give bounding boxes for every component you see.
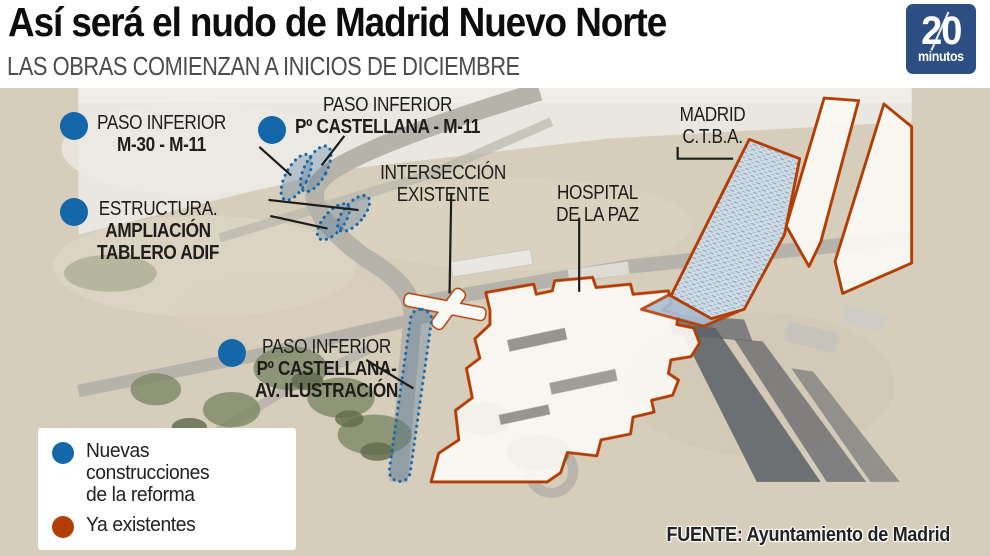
existing-dot bbox=[52, 516, 74, 538]
label-line: PASO INFERIOR bbox=[255, 336, 398, 358]
label-paso-inferior-m30: PASO INFERIOR M-30 - M-11 bbox=[60, 112, 247, 156]
label-paso-inferior-castellana-m11: PASO INFERIOR Pº CASTELLANA - M-11 bbox=[258, 94, 510, 144]
new-construction-dot bbox=[258, 116, 286, 144]
label-line: TABLERO ADIF bbox=[97, 242, 219, 264]
label-line: PASO INFERIOR bbox=[295, 94, 480, 116]
label-line: DE LA PAZ bbox=[539, 204, 655, 226]
new-construction-dot bbox=[218, 339, 246, 367]
logo-number: 20 bbox=[921, 14, 961, 48]
label-line: C.T.B.A. bbox=[663, 126, 762, 148]
logo-20minutos: 20 minutos bbox=[906, 4, 976, 74]
label-line: AMPLIACIÓN bbox=[97, 220, 219, 242]
aerial-map: PASO INFERIOR M-30 - M-11 PASO INFERIOR … bbox=[0, 88, 990, 556]
label-line: M-30 - M-11 bbox=[97, 134, 226, 156]
legend-item-new: Nuevas construcciones de la reforma bbox=[52, 440, 282, 506]
legend-label: Ya existentes bbox=[86, 514, 195, 536]
legend-label: de la reforma bbox=[86, 484, 270, 506]
label-madrid-ctba: MADRID C.T.B.A. bbox=[655, 104, 770, 149]
legend-item-existing: Ya existentes bbox=[52, 514, 282, 538]
label-line: MADRID bbox=[663, 104, 762, 126]
label-paso-inferior-castellana-ilustracion: PASO INFERIOR Pº CASTELLANA- AV. ILUSTRA… bbox=[218, 336, 421, 402]
label-line: PASO INFERIOR bbox=[97, 112, 226, 134]
infographic: Así será el nudo de Madrid Nuevo Norte L… bbox=[0, 0, 990, 556]
page-subtitle: LAS OBRAS COMIENZAN A INICIOS DE DICIEMB… bbox=[7, 51, 520, 82]
label-hospital-la-paz: HOSPITAL DE LA PAZ bbox=[530, 182, 665, 227]
label-line: HOSPITAL bbox=[539, 182, 655, 204]
label-line: ESTRUCTURA. bbox=[97, 198, 219, 220]
logo-word: minutos bbox=[918, 49, 964, 64]
label-line: EXISTENTE bbox=[379, 184, 508, 206]
label-interseccion-existente: INTERSECCIÓN EXISTENTE bbox=[368, 162, 518, 207]
label-line: AV. ILUSTRACIÓN bbox=[255, 380, 398, 402]
page-title: Así será el nudo de Madrid Nuevo Norte bbox=[8, 0, 666, 45]
source-credit: FUENTE: Ayuntamiento de Madrid bbox=[666, 524, 950, 547]
legend-label: Nuevas construcciones bbox=[86, 440, 270, 484]
label-line: Pº CASTELLANA- bbox=[255, 358, 398, 380]
new-construction-dot bbox=[52, 442, 74, 464]
label-line: Pº CASTELLANA - M-11 bbox=[295, 116, 480, 138]
label-estructura-adif: ESTRUCTURA. AMPLIACIÓN TABLERO ADIF bbox=[60, 198, 239, 264]
map-legend: Nuevas construcciones de la reforma Ya e… bbox=[38, 428, 296, 550]
page-header: Así será el nudo de Madrid Nuevo Norte L… bbox=[0, 0, 990, 88]
new-construction-dot bbox=[60, 112, 88, 140]
label-line: INTERSECCIÓN bbox=[379, 162, 508, 184]
new-construction-dot bbox=[60, 198, 88, 226]
